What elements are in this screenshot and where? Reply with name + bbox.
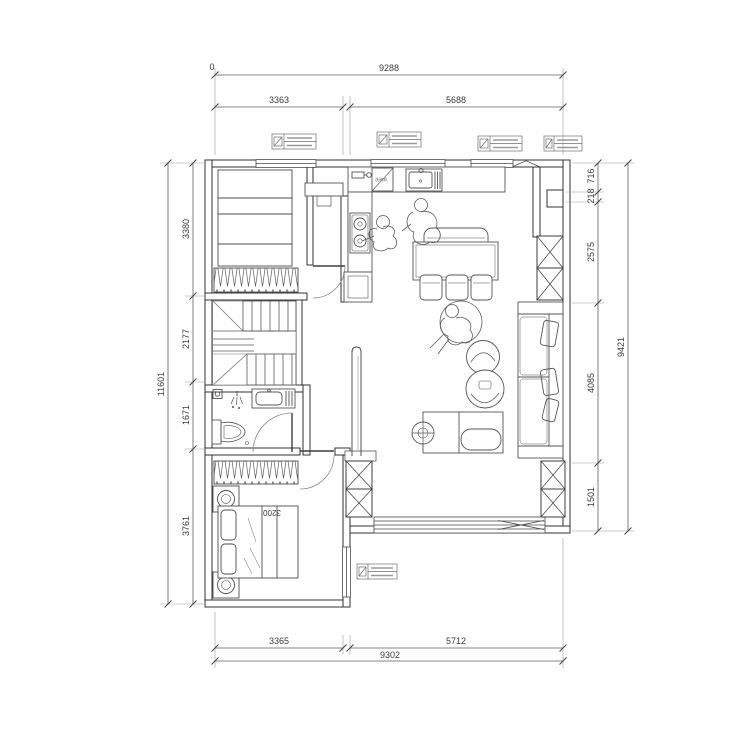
cabinet-x bbox=[537, 236, 563, 268]
stool-fan bbox=[412, 422, 434, 444]
living-area bbox=[345, 302, 563, 461]
dim-right-5: 1501 bbox=[586, 487, 596, 507]
dim-left-3: 1671 bbox=[181, 405, 191, 425]
window-bedroom1-top bbox=[256, 160, 316, 168]
dining-chair bbox=[420, 275, 442, 300]
dim-top-right: 5688 bbox=[446, 95, 466, 105]
window-schedule-tag bbox=[478, 136, 522, 151]
bed-length-label: 3200 bbox=[263, 508, 281, 517]
kitchen-sink bbox=[406, 169, 442, 192]
round-tea-table bbox=[466, 370, 504, 408]
bathroom bbox=[212, 389, 295, 445]
dim-right-2: 218 bbox=[586, 188, 596, 203]
balcony-sliding-window bbox=[374, 517, 545, 533]
floor-plan-drawing: 3200 洗碗机 bbox=[0, 0, 740, 740]
toilet bbox=[212, 420, 249, 445]
window-schedule-tag bbox=[357, 564, 397, 579]
dim-right-4: 4085 bbox=[586, 373, 596, 393]
dining-chair bbox=[471, 275, 492, 300]
dim-bottom-left: 3365 bbox=[269, 636, 289, 646]
bed-double bbox=[218, 170, 292, 266]
dim-top-overall: 9288 bbox=[379, 63, 399, 73]
window-kitchen-top bbox=[371, 160, 445, 168]
wardrobe-hangers bbox=[214, 268, 298, 292]
desk bbox=[423, 412, 503, 453]
dim-top-left: 3363 bbox=[269, 95, 289, 105]
dim-left-1: 3380 bbox=[181, 219, 191, 239]
wardrobe-hangers bbox=[214, 461, 298, 484]
window-bedroom2-side bbox=[343, 547, 351, 597]
dim-left-4: 3761 bbox=[181, 516, 191, 536]
dim-right-1: 716 bbox=[586, 168, 596, 183]
door-bathroom bbox=[253, 413, 292, 452]
door-bedroom1 bbox=[313, 266, 345, 298]
washbasin bbox=[252, 389, 295, 408]
dim-right-3: 2575 bbox=[586, 242, 596, 262]
round-side-table bbox=[467, 341, 500, 374]
dining-chair bbox=[446, 275, 468, 300]
bedroom1 bbox=[214, 170, 298, 292]
window-schedule-tag bbox=[272, 134, 316, 149]
gas-stove bbox=[350, 213, 370, 253]
cabinet-x bbox=[346, 489, 372, 517]
partition-screen bbox=[345, 347, 376, 461]
window-schedule-tag bbox=[377, 132, 421, 147]
cabinet-x bbox=[537, 268, 563, 300]
sofa bbox=[518, 302, 563, 458]
dining-area bbox=[413, 228, 498, 300]
dim-left-overall: 11601 bbox=[156, 372, 166, 396]
dim-origin: 0 bbox=[209, 62, 214, 72]
dim-left-2: 2177 bbox=[181, 329, 191, 349]
bed-double: 3200 bbox=[218, 506, 298, 578]
dim-right-overall: 9421 bbox=[616, 337, 626, 357]
dining-table bbox=[413, 242, 498, 280]
person-figure-at-sink bbox=[402, 199, 440, 245]
cabinet-x bbox=[346, 461, 372, 489]
cabinet-x bbox=[541, 461, 565, 489]
staircase bbox=[213, 301, 297, 385]
door-bedroom2 bbox=[300, 451, 334, 489]
bedroom2: 3200 bbox=[213, 461, 298, 598]
dim-bottom-overall: 9302 bbox=[380, 650, 400, 660]
cabinet-x bbox=[541, 489, 565, 517]
appliance-label: 洗碗机 bbox=[375, 176, 388, 183]
floor-plan-canvas: 3200 洗碗机 bbox=[0, 0, 740, 740]
dim-bottom-right: 5712 bbox=[446, 636, 466, 646]
kitchen-end-cabinet bbox=[344, 272, 372, 302]
